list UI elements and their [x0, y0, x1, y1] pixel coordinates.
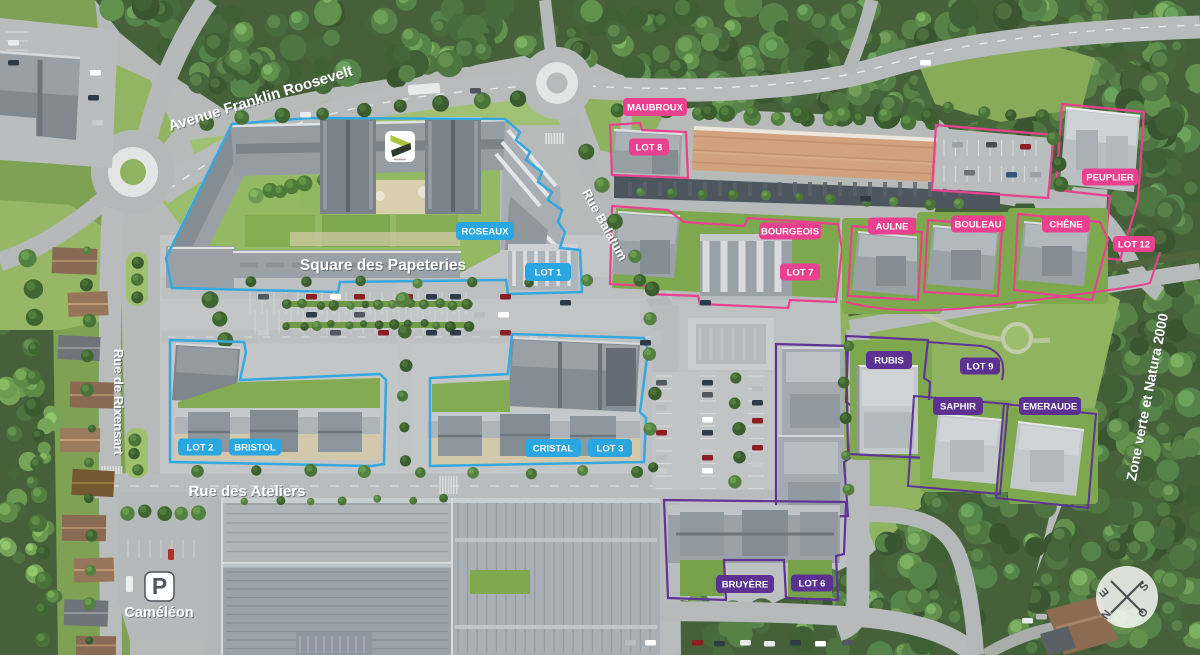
svg-text:BRISTOL: BRISTOL	[234, 442, 276, 453]
svg-text:Square des Papeteries: Square des Papeteries	[300, 257, 466, 274]
svg-text:MAUBROUX: MAUBROUX	[627, 102, 684, 113]
svg-text:CHÊNE: CHÊNE	[1049, 218, 1082, 230]
svg-text:ROSEAUX: ROSEAUX	[462, 226, 510, 237]
svg-text:LOT 6: LOT 6	[799, 578, 826, 589]
svg-text:LOT 7: LOT 7	[787, 267, 814, 278]
svg-text:Rue de Rixensart: Rue de Rixensart	[111, 349, 126, 456]
svg-text:LOT 9: LOT 9	[967, 361, 994, 372]
svg-text:Rue des Ateliers: Rue des Ateliers	[189, 483, 306, 500]
svg-text:LOT 1: LOT 1	[535, 267, 563, 278]
svg-text:RUBIS: RUBIS	[874, 355, 904, 366]
svg-text:AULNE: AULNE	[876, 221, 909, 232]
svg-text:CRISTAL: CRISTAL	[533, 443, 574, 454]
svg-text:BRUYÈRE: BRUYÈRE	[722, 579, 768, 590]
svg-text:BOULEAU: BOULEAU	[955, 219, 1002, 230]
svg-text:P: P	[152, 573, 167, 599]
svg-text:Caméléon: Caméléon	[124, 605, 193, 621]
svg-text:EMERAUDE: EMERAUDE	[1023, 401, 1077, 412]
svg-text:BOURGEOIS: BOURGEOIS	[761, 226, 819, 237]
svg-text:SAPHIR: SAPHIR	[940, 401, 976, 412]
svg-text:LOT 2: LOT 2	[187, 442, 214, 453]
svg-text:LOT 3: LOT 3	[597, 443, 624, 454]
svg-text:PEUPLIER: PEUPLIER	[1086, 172, 1134, 183]
svg-text:LOT 12: LOT 12	[1118, 239, 1150, 250]
svg-text:LOT 8: LOT 8	[636, 142, 663, 153]
